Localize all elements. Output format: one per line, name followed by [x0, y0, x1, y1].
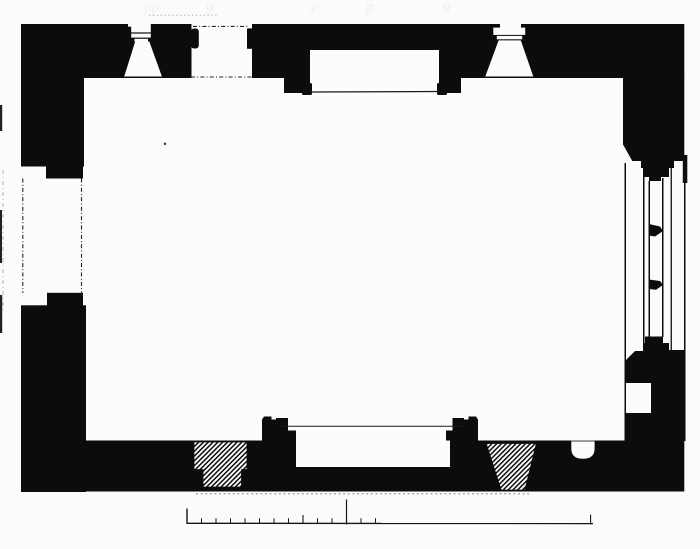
- svg-text:pp: pp: [143, 0, 160, 16]
- svg-text:p: p: [365, 0, 374, 15]
- svg-text:g: g: [443, 0, 451, 14]
- svg-text:g: g: [206, 0, 214, 15]
- svg-text:y: y: [308, 0, 317, 16]
